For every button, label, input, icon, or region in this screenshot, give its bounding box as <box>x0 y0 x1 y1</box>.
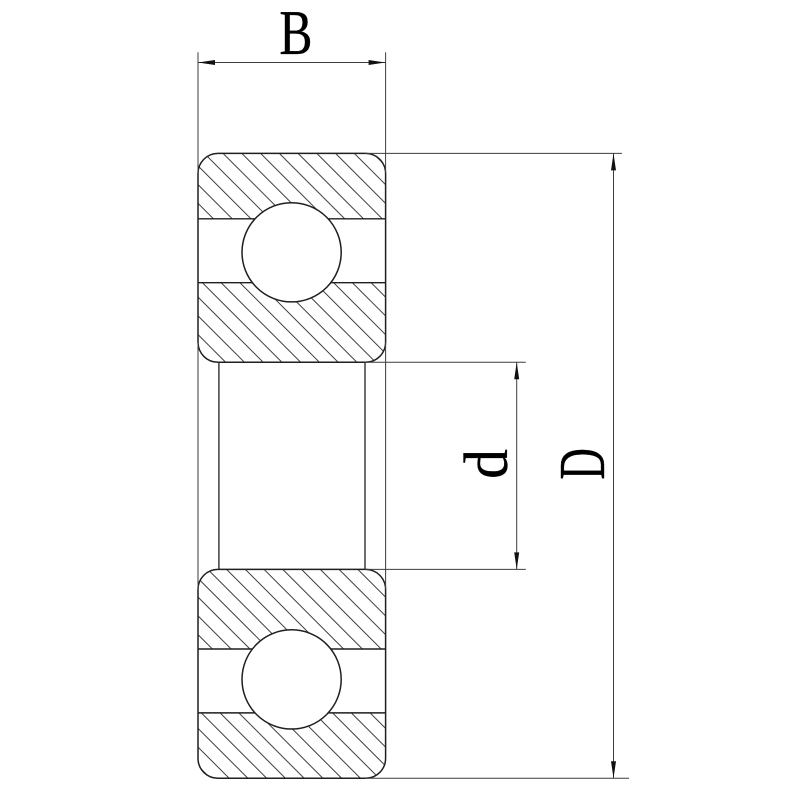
svg-text:d: d <box>453 449 521 479</box>
svg-text:D: D <box>546 448 619 479</box>
svg-text:B: B <box>279 0 312 69</box>
